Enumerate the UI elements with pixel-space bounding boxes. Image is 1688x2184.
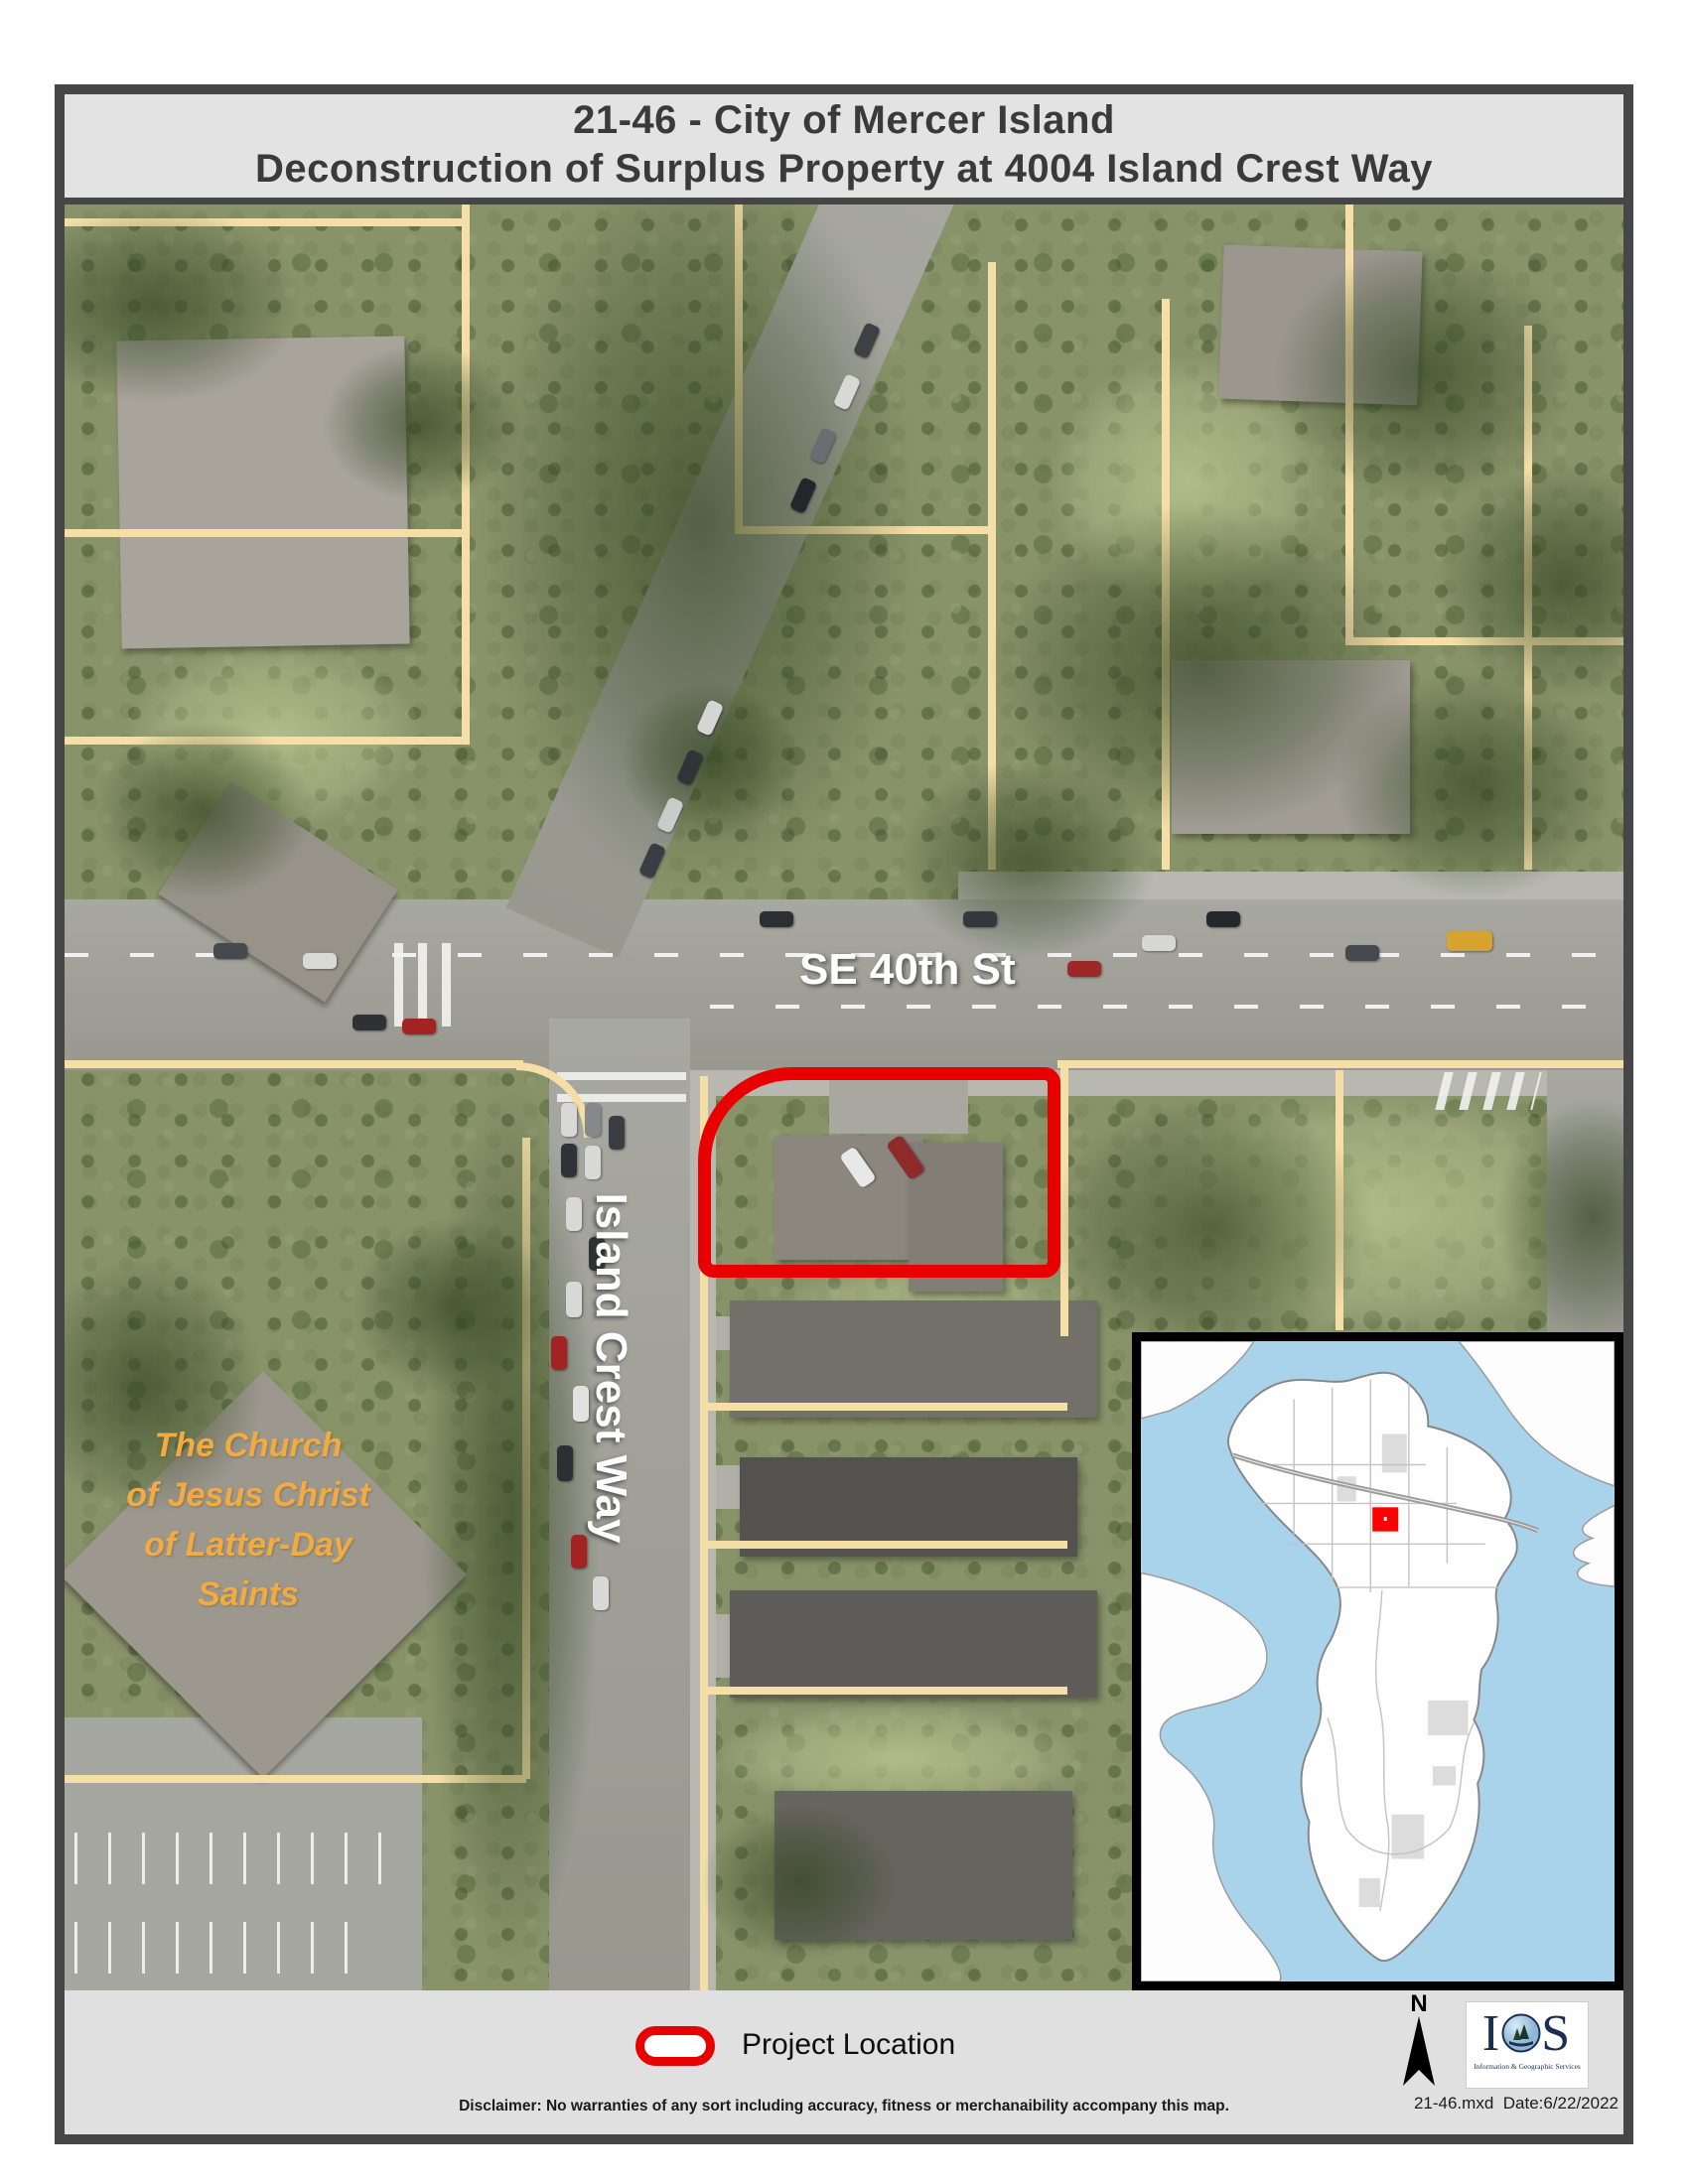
legend-label: Project Location [742,2028,955,2062]
igs-letter-s: S [1541,2004,1572,2063]
igs-logo-row: I S [1467,2002,1588,2064]
car [402,1019,436,1034]
tree-canopy [1276,244,1574,502]
car [557,1445,573,1481]
parking-stripes [74,1922,372,1974]
lane-dashes [710,1005,1623,1009]
igs-logo-subtitle: Information & Geographic Services [1467,2062,1588,2071]
car [585,1103,601,1137]
parcel-line [65,1060,523,1068]
map-document-page: 21-46 - City of Mercer Island Deconstruc… [0,0,1688,2184]
church-label-line3: of Latter-Day [84,1520,412,1570]
car [551,1336,567,1370]
church-label-line4: Saints [84,1570,412,1619]
car [1067,961,1101,977]
parcel-line [700,1687,1067,1695]
car [561,1103,577,1137]
car [561,1144,577,1177]
tree-canopy [1435,463,1623,701]
church-label: The Church of Jesus Christ of Latter-Day… [84,1421,412,1619]
tree-canopy [323,343,521,502]
parking-stripes [74,1833,402,1884]
inset-overview-map [1132,1332,1623,1990]
church-label-line2: of Jesus Christ [84,1470,412,1520]
parcel-line [1057,1060,1623,1068]
map-title-line1: 21-46 - City of Mercer Island [65,96,1623,145]
church-label-line1: The Church [84,1421,412,1470]
building [730,1590,1097,1698]
car [571,1535,587,1569]
car [760,911,793,927]
mercer-island-inset-svg [1141,1341,1615,1981]
footer-bar: Project Location N I S Inform [65,1990,1623,2134]
project-location-symbol [635,2026,715,2066]
map-frame: 21-46 - City of Mercer Island Deconstruc… [55,84,1633,2144]
disclaimer-text: Disclaimer: No warranties of any sort in… [65,2098,1623,2116]
aerial-map: SE 40th St Island Crest Way The Church o… [65,205,1623,1990]
project-location-outline [698,1067,1060,1278]
street-label-se-40th: SE 40th St [799,945,1016,995]
north-label: N [1401,1990,1437,2018]
car [963,911,997,927]
tree-canopy [1336,671,1614,899]
map-title-line2: Deconstruction of Surplus Property at 40… [65,145,1623,194]
car [566,1197,582,1231]
car [1345,945,1379,961]
car [1206,911,1240,927]
north-arrow-icon [1402,2016,1436,2090]
street-label-island-crest: Island Crest Way [586,1140,635,1596]
crosswalk-west [394,943,456,1026]
igs-logo: I S Information & Geographic Services [1467,2002,1588,2088]
tree-canopy [899,760,1157,959]
car [1447,931,1492,951]
parcel-line [700,1541,1067,1549]
car [566,1282,582,1317]
igs-globe-trees-icon [1501,2013,1541,2053]
building [730,1300,1097,1418]
tree-canopy [1048,1098,1375,1356]
tree-canopy [352,1217,551,1396]
inset-project-marker-dot [1384,1517,1387,1521]
car [213,943,247,959]
title-bar: 21-46 - City of Mercer Island Deconstruc… [65,94,1623,206]
car [352,1015,386,1030]
tree-canopy [94,721,313,899]
igs-letter-i: I [1482,2004,1501,2063]
car [303,953,337,969]
tree-canopy [700,1803,899,1962]
parcel-line [65,529,464,537]
car [1142,935,1176,951]
crosswalk-east [1435,1072,1541,1110]
parcel-line [700,1403,1067,1411]
